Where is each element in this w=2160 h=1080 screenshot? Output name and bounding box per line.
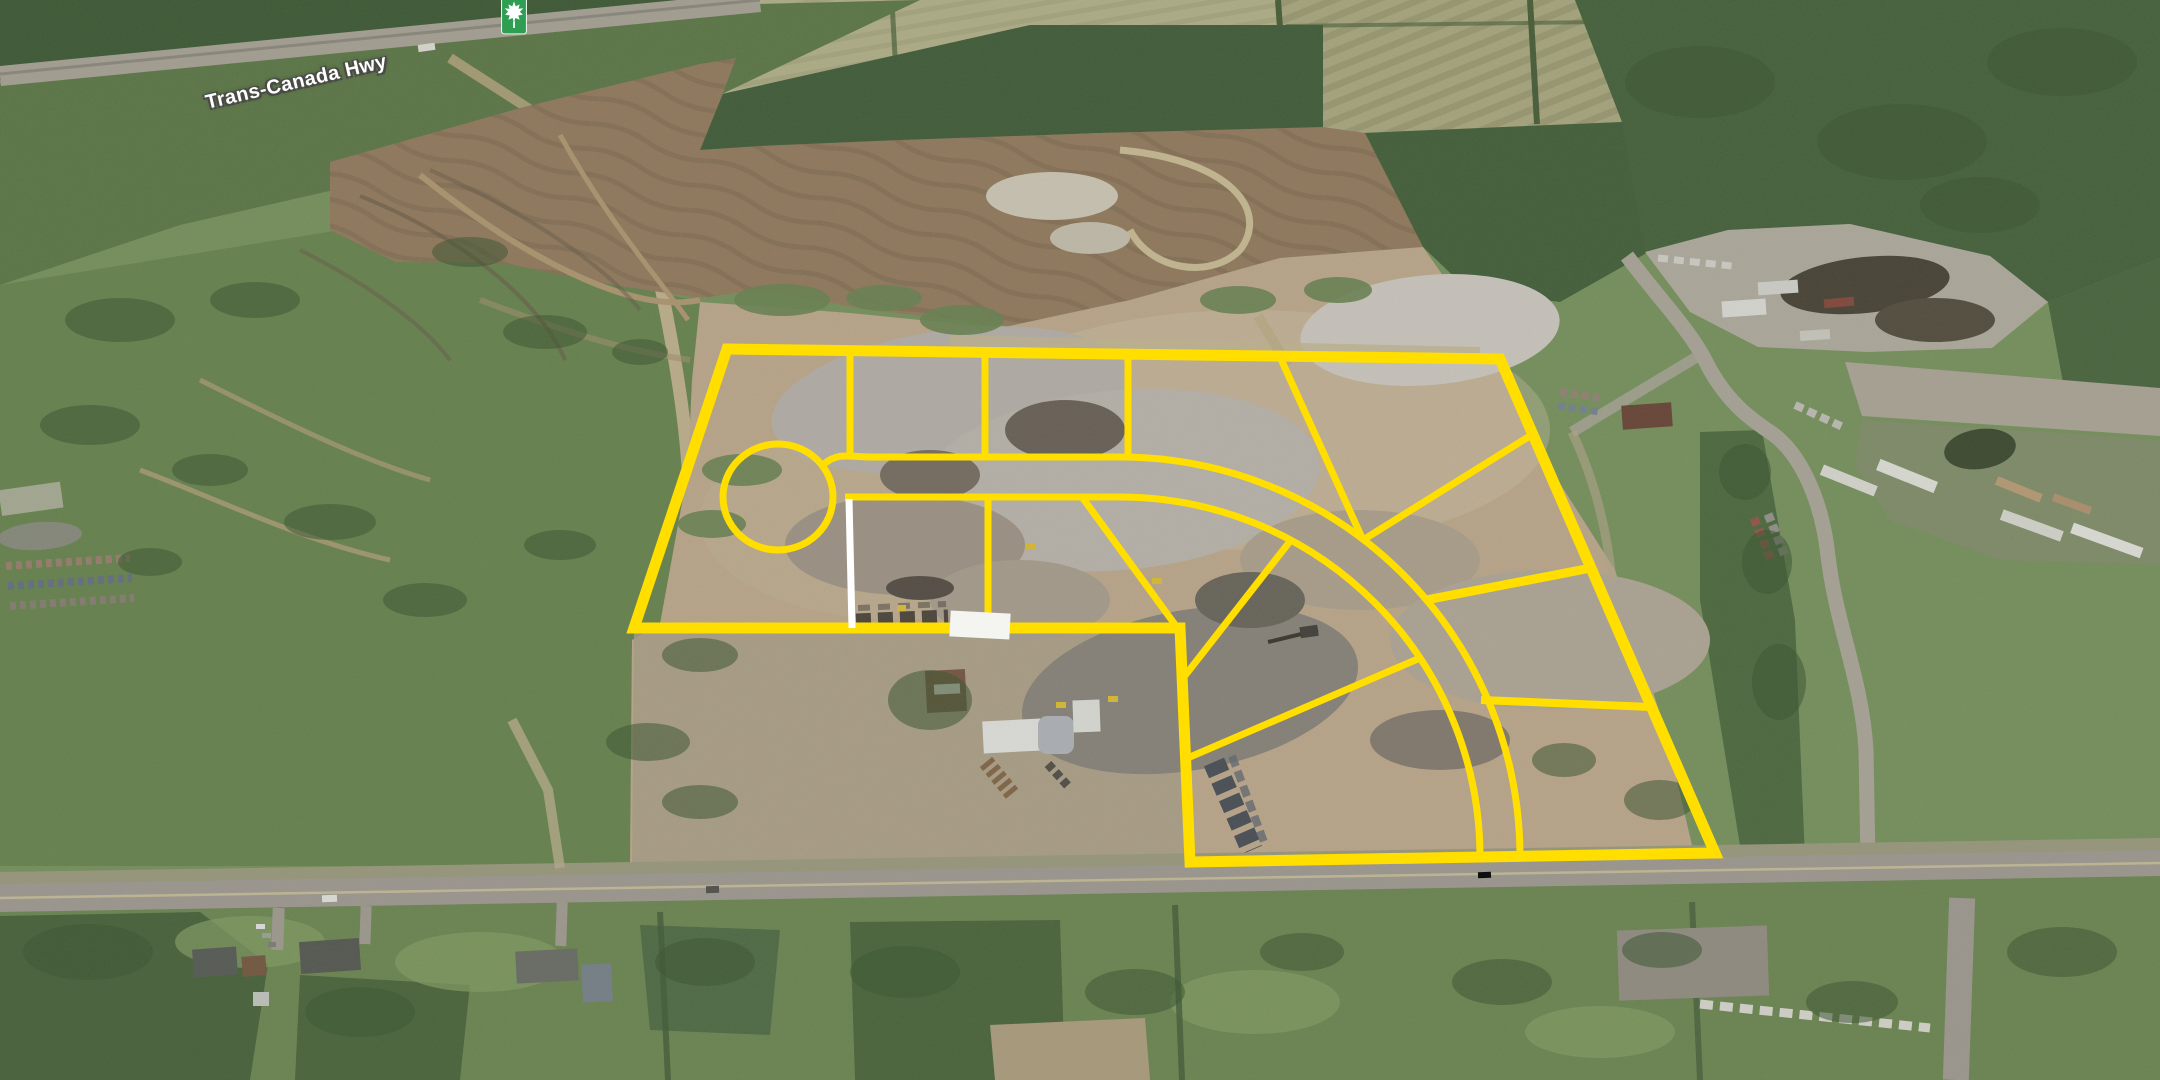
foreground-structures-layer (0, 0, 2160, 1080)
white-building-on-boundary (949, 610, 1010, 639)
satellite-map-canvas[interactable]: Trans-Canada Hwy (0, 0, 2160, 1080)
trans-canada-shield-icon (501, 0, 527, 35)
maple-leaf-stem (513, 21, 515, 28)
